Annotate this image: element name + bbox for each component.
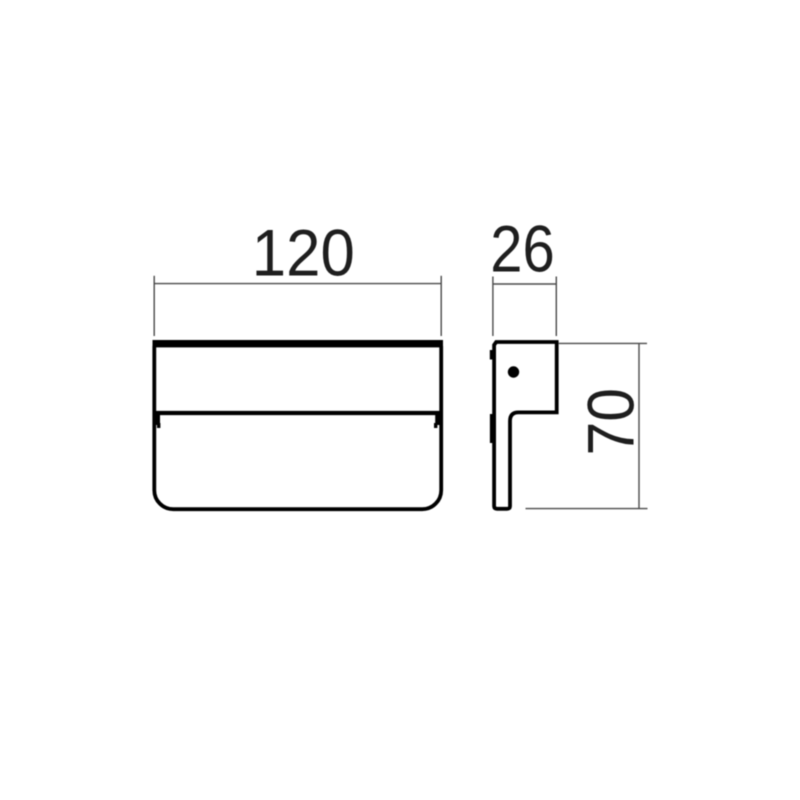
svg-text:26: 26 xyxy=(490,212,555,286)
svg-text:70: 70 xyxy=(574,388,648,456)
svg-text:120: 120 xyxy=(252,216,355,290)
